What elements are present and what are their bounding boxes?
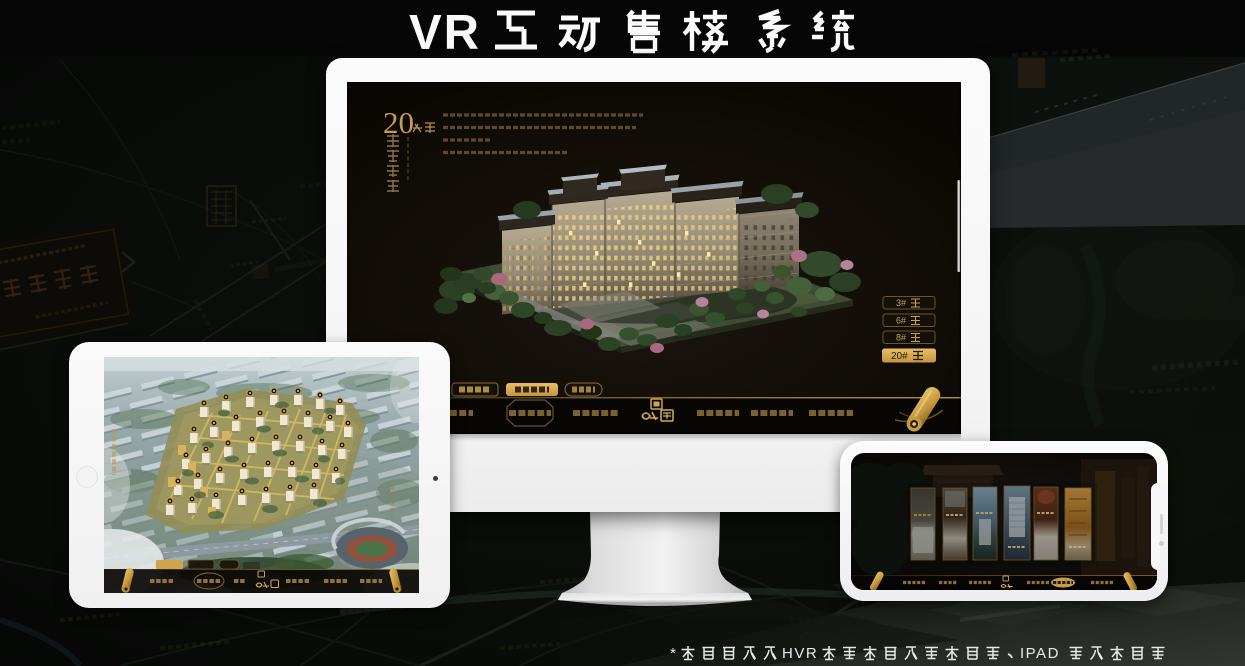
svg-text:6#: 6#: [896, 316, 906, 326]
svg-text:IPAD: IPAD: [1020, 645, 1060, 662]
svg-text:20: 20: [383, 105, 414, 140]
svg-text:HVR: HVR: [782, 645, 818, 662]
svg-text:3#: 3#: [896, 298, 906, 308]
svg-text:*: *: [670, 645, 676, 662]
svg-text:VR: VR: [409, 6, 481, 56]
svg-text:20#: 20#: [891, 351, 908, 362]
svg-text:8#: 8#: [896, 333, 906, 343]
